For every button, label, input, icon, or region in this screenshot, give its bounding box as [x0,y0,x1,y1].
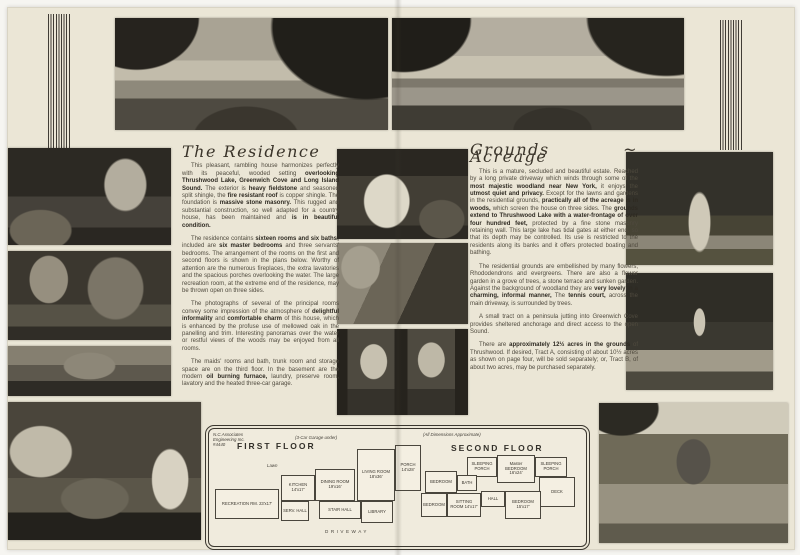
room-sleeping-porch-1: SLEEPING PORCH [467,457,497,477]
residence-paragraph: The maids' rooms and bath, trunk room an… [182,359,339,389]
decorative-stripes-left [48,14,71,148]
room-recreation: RECREATION RM. 23'x17' [215,489,279,519]
grounds-paragraph: This is a mature, secluded and beautiful… [470,169,638,258]
room-bedroom-2: BEDROOM [421,493,447,517]
decorative-stripes-right [720,20,743,150]
garage-note: (3-Car Garage under) [295,435,337,440]
residence-paragraph: The photographs of several of the princi… [182,301,339,353]
scanned-brochure: The Residence This pleasant, rambling ho… [0,0,800,555]
grounds-paragraph: The residential grounds are embellished … [470,264,638,308]
room-deck: DECK [539,477,575,507]
photo-living-room-interior [8,402,201,540]
room-service-hall: SERV. HALL [281,501,309,521]
first-floor-title: FIRST FLOOR [237,441,316,451]
residence-paragraph: This pleasant, rambling house harmonizes… [182,163,339,230]
photo-lake-panorama-right [392,18,684,130]
room-library: LIBRARY [361,501,393,523]
photo-wooded-driveway [626,152,773,265]
page-fold-crease [394,0,402,555]
photo-garden-terrace [599,403,788,543]
room-stair-hall: STAIR HALL [319,501,361,519]
room-bath: BATH [457,475,477,491]
room-kitchen: KITCHEN 14'x17' [281,475,315,501]
residence-paragraph: The residence contains sixteen rooms and… [182,236,339,295]
photo-lake-panorama-left [115,18,388,130]
grounds-paragraph: There are approximately 12½ acres in the… [470,342,638,372]
second-floor-title: SECOND FLOOR [451,443,543,453]
residence-title: The Residence [182,148,339,155]
photo-fireplace-room [337,149,468,239]
lawn-label: Lawn [267,463,278,468]
photo-flower-garden [626,273,773,390]
dimensions-note: (All Dimensions Approximate) [423,432,481,437]
grounds-title: Grounds ~ Acreage [470,146,638,161]
room-bedroom-3: BEDROOM 15'x17' [505,491,541,519]
room-hall: HALL [481,491,505,507]
photo-sitting-room-interior [8,251,171,340]
photo-porch-water-view [337,329,468,415]
photo-oak-staircase [337,243,468,324]
room-living: LIVING ROOM 18'x36' [357,449,395,501]
photo-library-interior [8,148,171,245]
room-sleeping-porch-2: SLEEPING PORCH [535,457,567,477]
room-dining: DINING ROOM 19'x16' [315,469,355,501]
article-residence: The Residence This pleasant, rambling ho… [182,148,339,395]
room-sitting: SITTING ROOM 14'x17' [447,493,481,517]
room-master-bedroom: Master BEDROOM 16'x24' [497,455,535,483]
photo-dining-room-interior [8,346,171,396]
grounds-paragraph: A small tract on a peninsula jutting int… [470,314,638,336]
room-bedroom-1: BEDROOM [425,471,457,493]
driveway-label: DRIVEWAY [325,529,369,534]
article-grounds-acreage: Grounds ~ Acreage This is a mature, secl… [470,146,638,378]
